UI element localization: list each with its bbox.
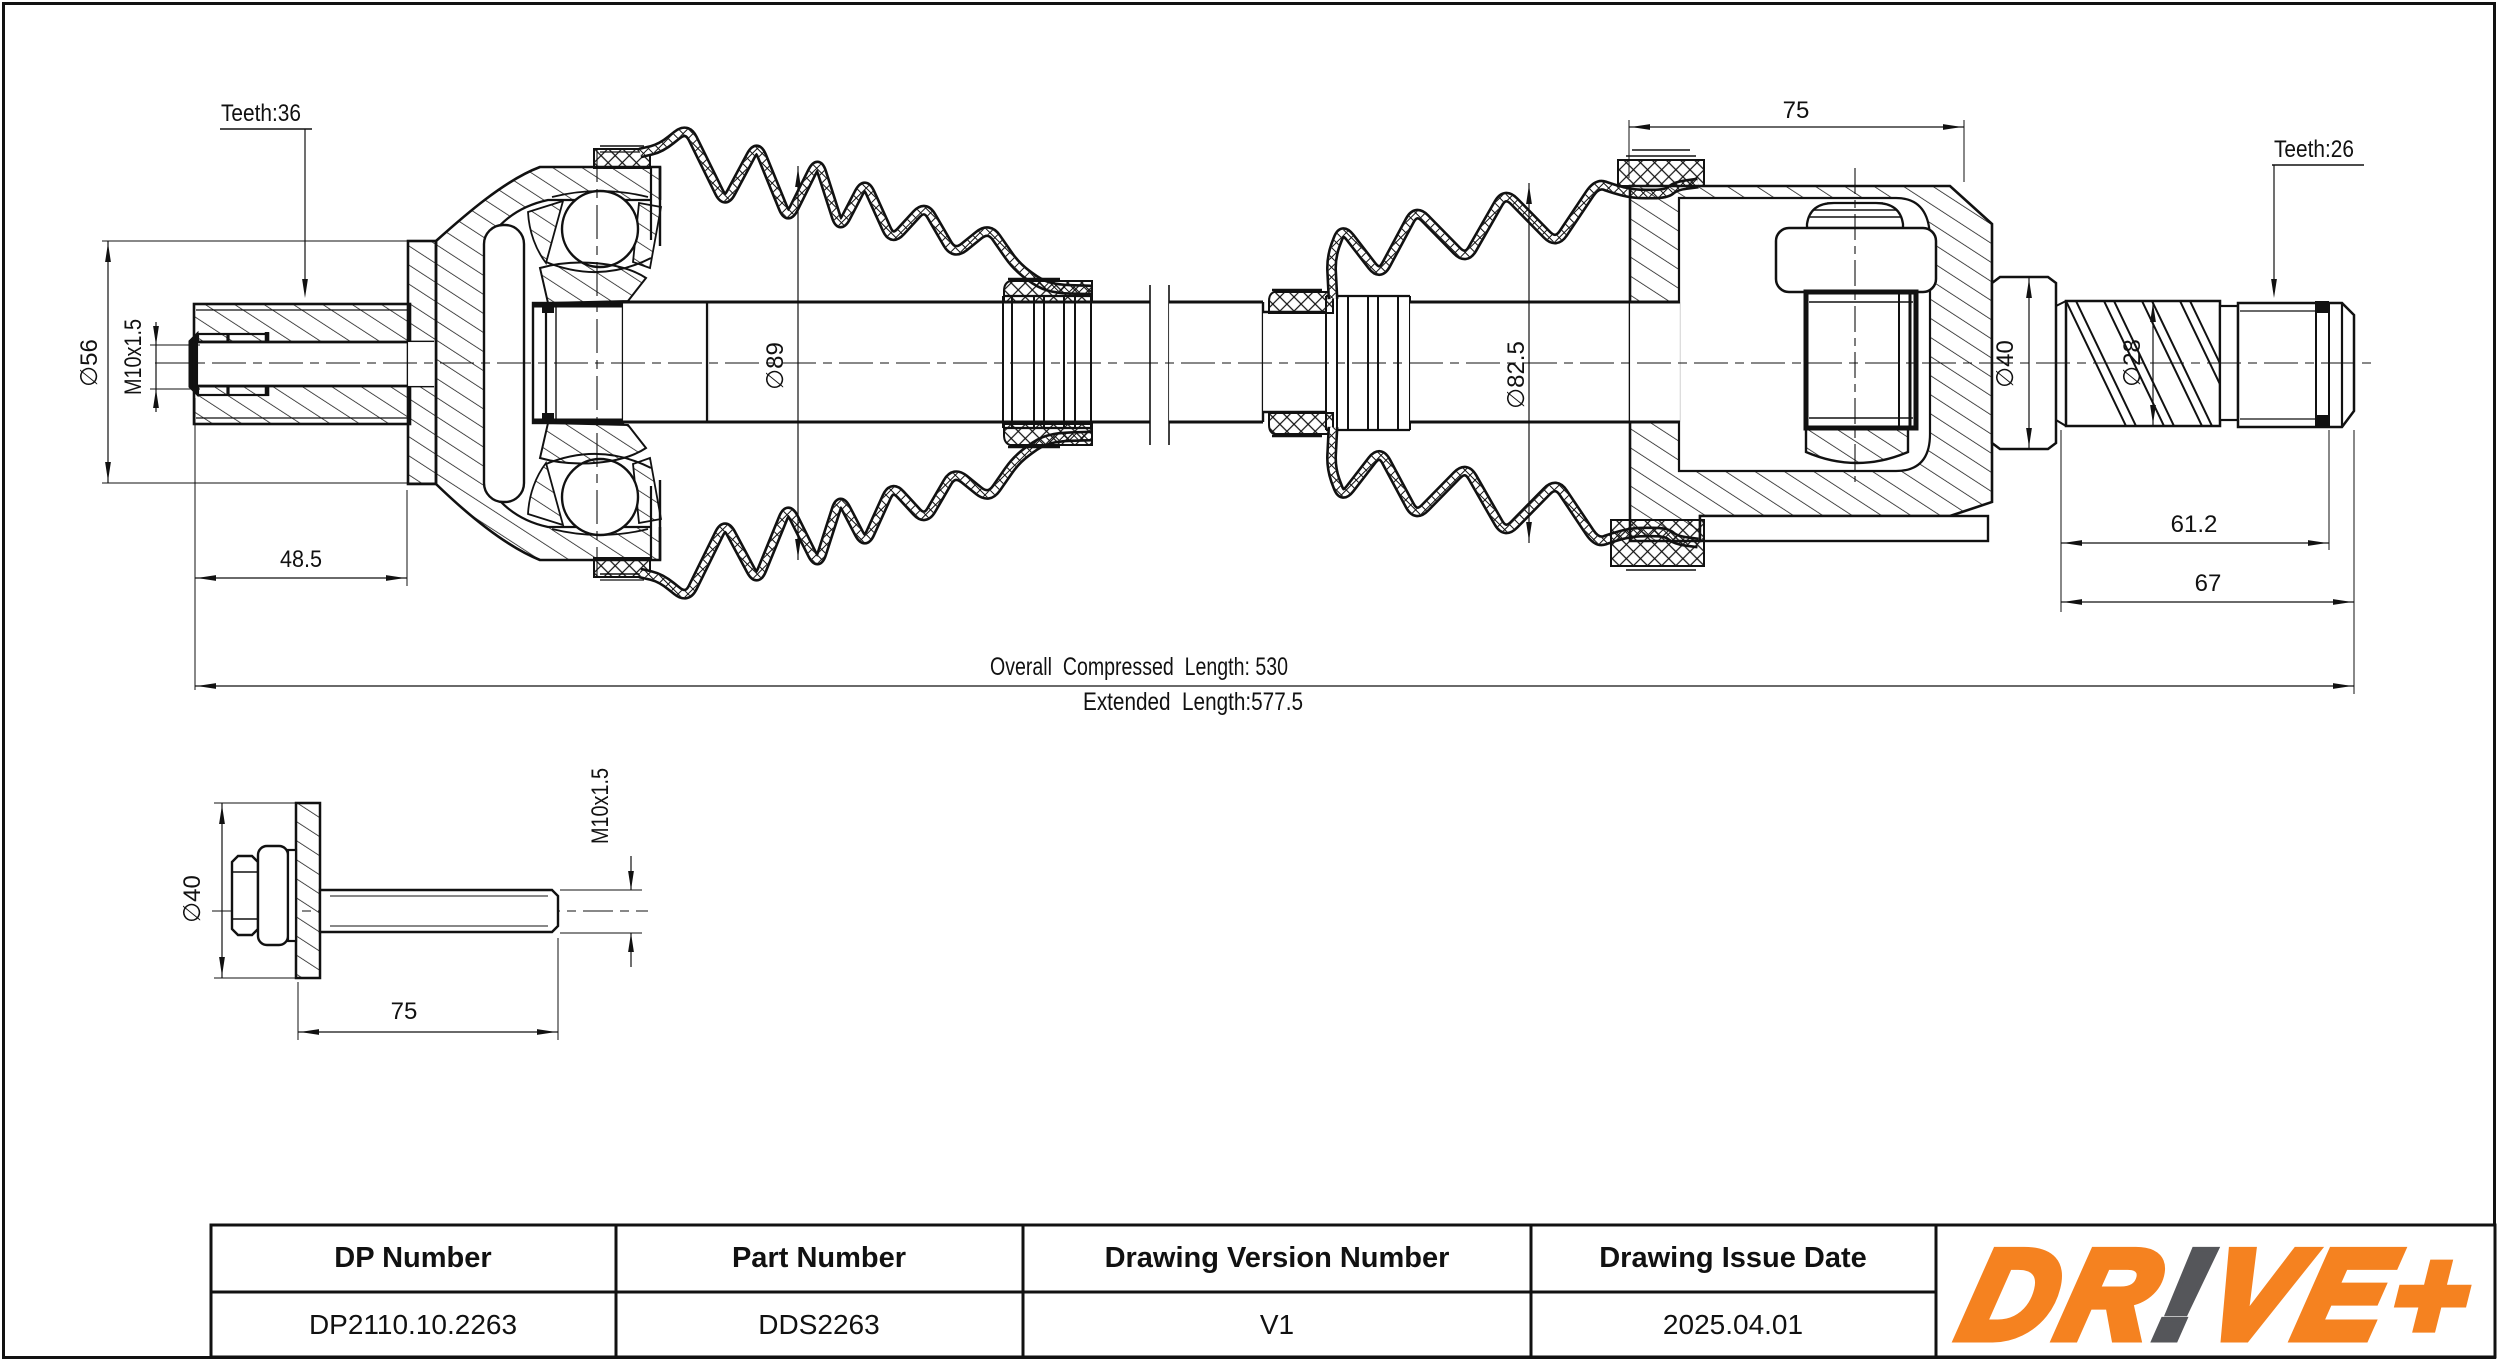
svg-text:V1: V1: [1260, 1309, 1294, 1340]
svg-text:Overall Compressed Length: 5: Overall Compressed Length: 530: [990, 653, 1288, 681]
svg-text:75: 75: [391, 998, 418, 1025]
svg-text:M10x1.5: M10x1.5: [587, 768, 614, 844]
svg-text:DR!VE+: DR!VE+: [1949, 1225, 2492, 1363]
svg-text:∅56: ∅56: [76, 339, 103, 387]
svg-text:DDS2263: DDS2263: [758, 1309, 879, 1340]
svg-text:61.2: 61.2: [2171, 511, 2218, 538]
svg-text:Part Number: Part Number: [732, 1242, 906, 1274]
svg-text:∅89: ∅89: [762, 342, 789, 390]
svg-text:Extended Length:577.5: Extended Length:577.5: [1083, 688, 1303, 716]
svg-text:∅82.5: ∅82.5: [1503, 341, 1530, 409]
svg-text:Drawing Issue Date: Drawing Issue Date: [1599, 1242, 1867, 1274]
svg-text:∅40: ∅40: [1992, 340, 2019, 388]
svg-text:67: 67: [2195, 570, 2222, 597]
svg-text:2025.04.01: 2025.04.01: [1663, 1309, 1803, 1340]
svg-text:48.5: 48.5: [280, 546, 322, 573]
svg-text:Teeth:26: Teeth:26: [2274, 136, 2354, 163]
svg-text:DP Number: DP Number: [334, 1242, 491, 1274]
svg-text:∅28: ∅28: [2119, 339, 2146, 387]
svg-text:M10x1.5: M10x1.5: [120, 319, 147, 395]
svg-text:∅40: ∅40: [179, 875, 206, 923]
svg-text:Teeth:36: Teeth:36: [221, 100, 301, 127]
svg-text:Drawing Version Number: Drawing Version Number: [1105, 1242, 1450, 1274]
svg-text:75: 75: [1783, 97, 1810, 124]
svg-text:DP2110.10.2263: DP2110.10.2263: [309, 1309, 517, 1340]
